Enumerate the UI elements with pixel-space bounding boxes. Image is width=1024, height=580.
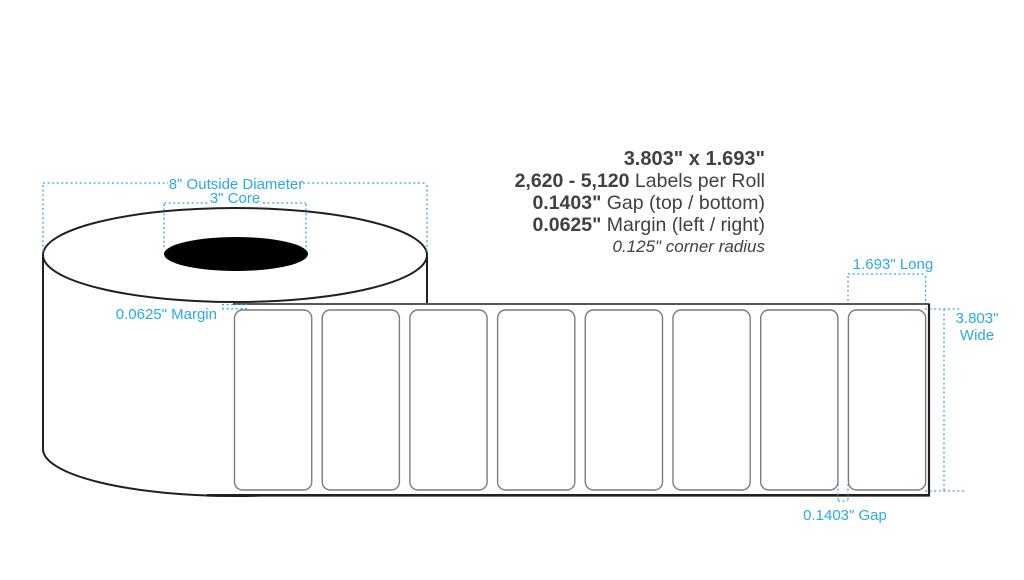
spec-labels-per-roll-suffix: Labels per Roll — [630, 170, 766, 192]
spec-corner-radius: 0.125" corner radius — [515, 236, 765, 258]
spec-size: 3.803" x 1.693" — [515, 148, 765, 170]
die-cut-label-6 — [673, 310, 750, 490]
spec-margin-value: 0.0625" — [532, 214, 601, 236]
die-cut-label-2 — [322, 310, 399, 490]
margin-label: 0.0625" Margin — [97, 306, 217, 323]
spec-margin: 0.0625" Margin (left / right) — [515, 214, 765, 236]
diagram-canvas — [0, 0, 1024, 580]
spec-labels-per-roll-value: 2,620 - 5,120 — [515, 170, 630, 192]
spec-gap-suffix: Gap (top / bottom) — [601, 192, 765, 214]
spec-block: 3.803" x 1.693" 2,620 - 5,120 Labels per… — [515, 148, 765, 258]
die-cut-label-1 — [235, 310, 312, 490]
label-length-label: 1.693" Long — [833, 256, 953, 273]
spec-labels-per-roll: 2,620 - 5,120 Labels per Roll — [515, 170, 765, 192]
die-cut-label-3 — [410, 310, 487, 490]
spec-gap-value: 0.1403" — [532, 192, 601, 214]
label-roll-diagram: 8" Outside Diameter 3" Core 0.0625" Marg… — [0, 0, 1024, 580]
spec-gap: 0.1403" Gap (top / bottom) — [515, 192, 765, 214]
label-width-label: 3.803" Wide — [927, 311, 1024, 344]
roll-core-hole — [164, 237, 308, 271]
core-label: 3" Core — [185, 190, 285, 207]
label-width-value: 3.803" — [927, 311, 1024, 328]
gap-label: 0.1403" Gap — [785, 507, 905, 524]
die-cut-label-5 — [585, 310, 662, 490]
spec-margin-suffix: Margin (left / right) — [601, 214, 765, 236]
die-cut-label-7 — [761, 310, 838, 490]
die-cut-label-8 — [848, 310, 925, 490]
die-cut-label-4 — [498, 310, 575, 490]
label-width-word: Wide — [927, 328, 1024, 345]
long-dim-lines — [848, 274, 926, 302]
